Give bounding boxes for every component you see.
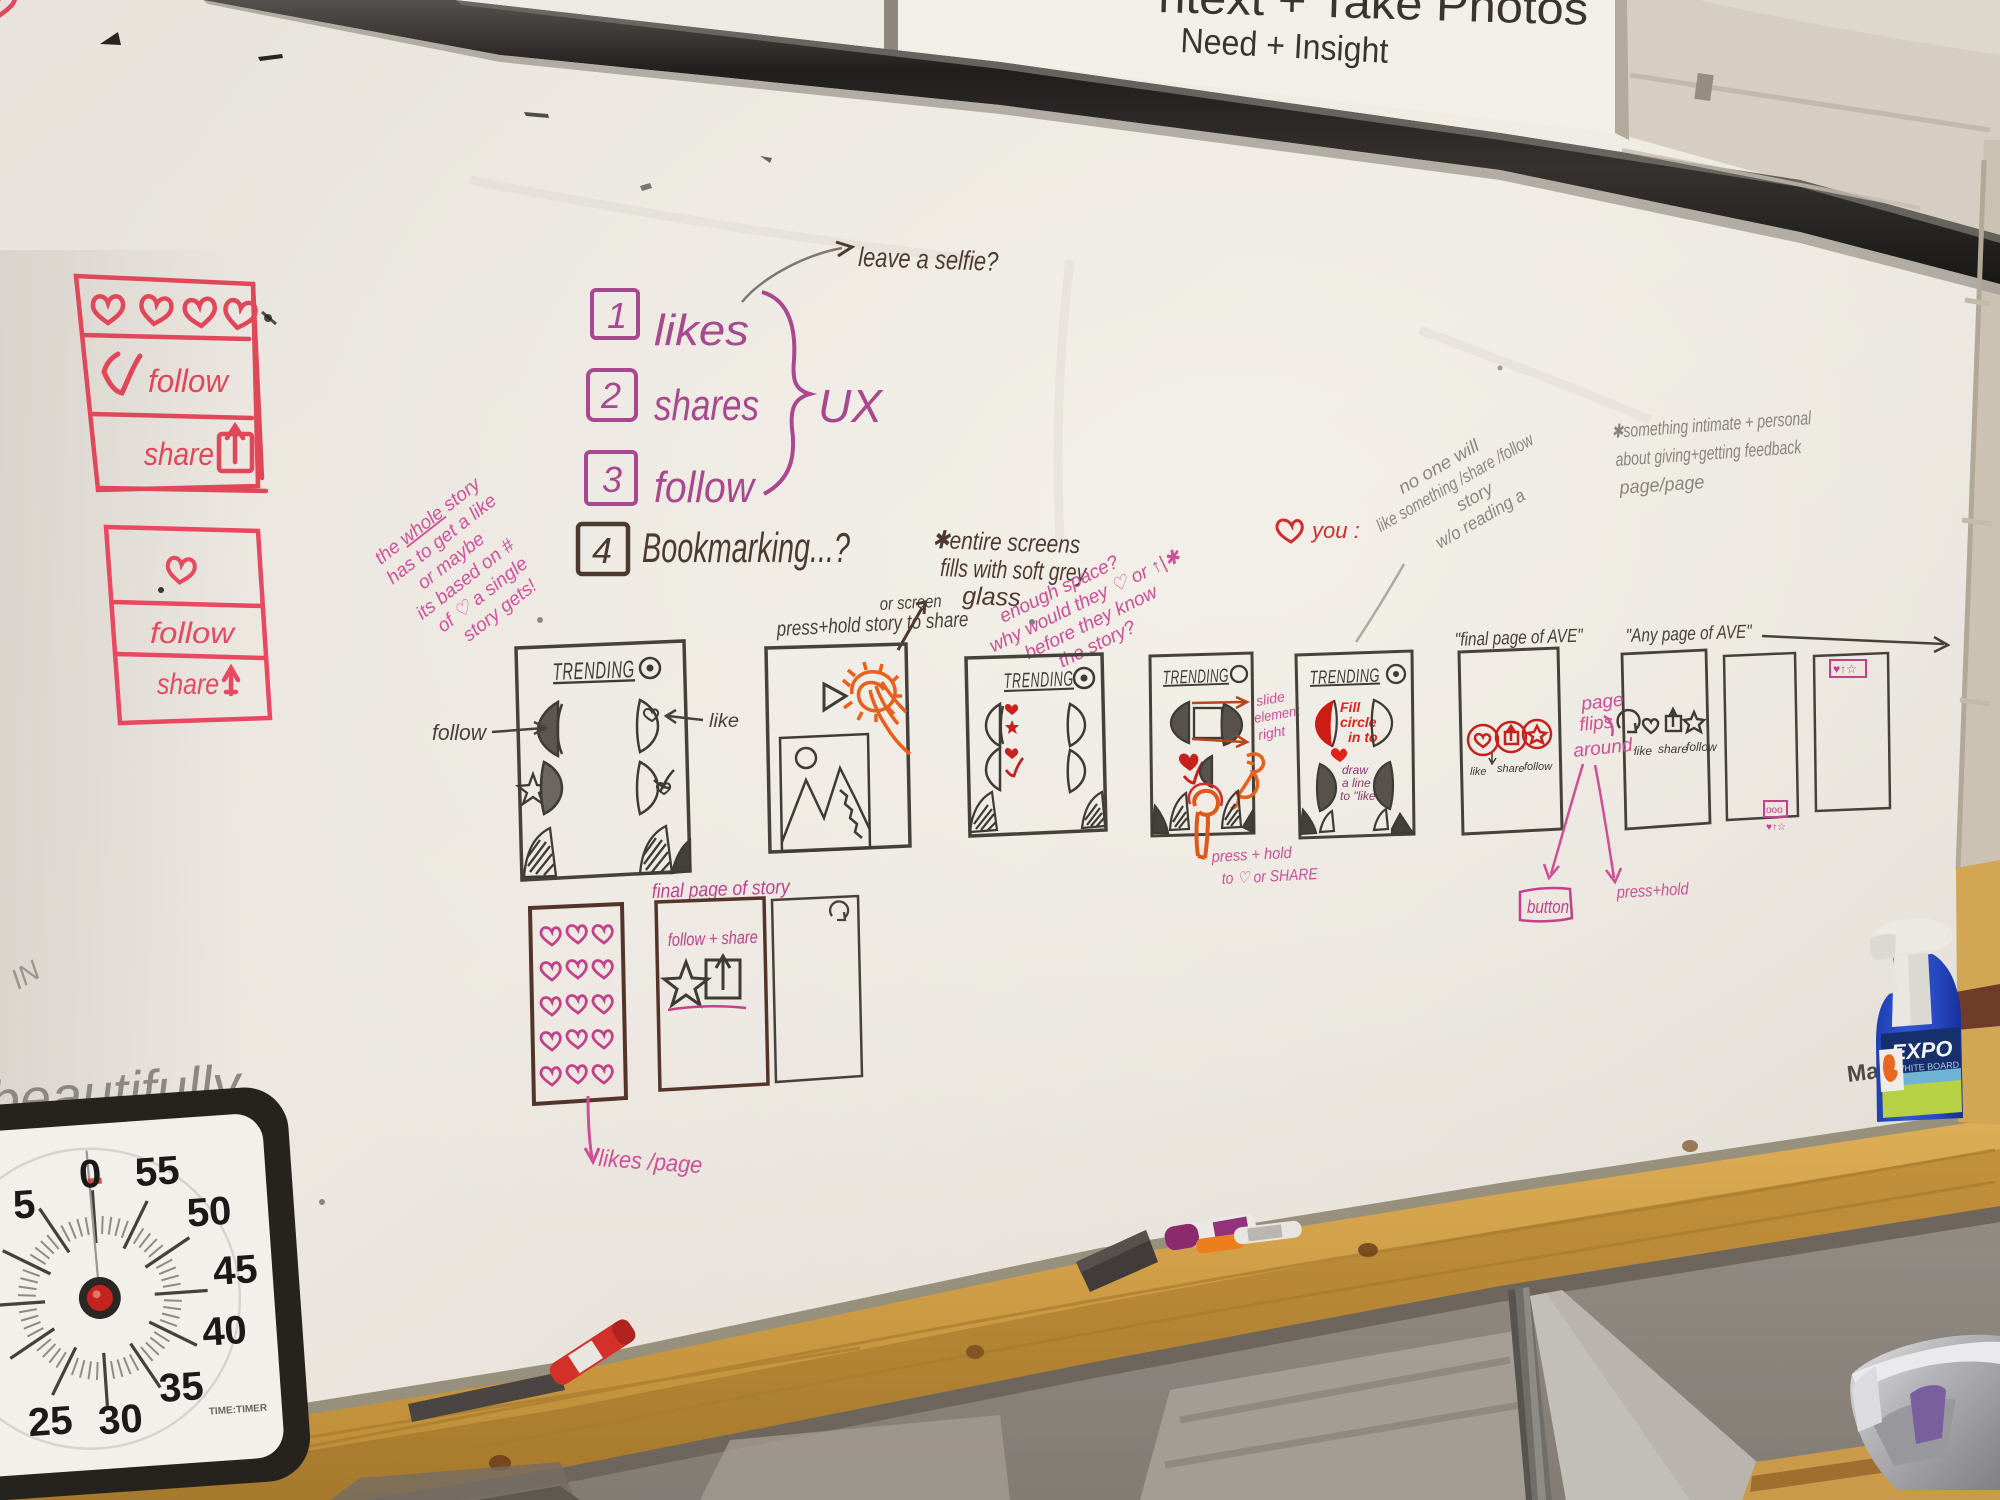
svg-text:follow: follow <box>1686 740 1718 754</box>
svg-text:TRENDING: TRENDING <box>1162 666 1229 689</box>
svg-text:share: share <box>144 436 214 472</box>
svg-text:like: like <box>1470 766 1487 778</box>
svg-text:draw: draw <box>1342 763 1369 777</box>
svg-text:45: 45 <box>212 1247 259 1294</box>
svg-text:share: share <box>1658 742 1688 756</box>
svg-text:50: 50 <box>185 1189 232 1236</box>
svg-text:button: button <box>1527 897 1569 917</box>
svg-text:a line: a line <box>1342 776 1371 790</box>
svg-text:follow: follow <box>432 720 488 745</box>
svg-text:press+hold: press+hold <box>1615 879 1689 902</box>
svg-text:share: share <box>1497 763 1525 775</box>
svg-text:40: 40 <box>201 1308 248 1355</box>
svg-text:TRENDING: TRENDING <box>552 656 635 686</box>
svg-text:UX: UX <box>818 380 884 432</box>
svg-text:55: 55 <box>133 1148 180 1195</box>
svg-text:1: 1 <box>607 295 627 336</box>
svg-text:flips: flips <box>1578 712 1614 736</box>
svg-text:leave a selfie?: leave a selfie? <box>858 242 999 277</box>
svg-text:like: like <box>709 711 739 732</box>
svg-text:ooo: ooo <box>1766 805 1783 816</box>
svg-text:35: 35 <box>158 1364 205 1411</box>
svg-text:2: 2 <box>600 375 621 416</box>
svg-text:4: 4 <box>592 530 612 571</box>
svg-text:TRENDING: TRENDING <box>1309 666 1380 689</box>
svg-text:25: 25 <box>27 1398 74 1445</box>
svg-text:Bookmarking...?: Bookmarking...? <box>642 524 850 571</box>
svg-text:to "like": to "like" <box>1340 789 1381 803</box>
svg-text:follow: follow <box>1524 761 1553 773</box>
svg-text:30: 30 <box>97 1396 144 1443</box>
svg-text:"Any page of AVE": "Any page of AVE" <box>1625 622 1753 647</box>
svg-text:5: 5 <box>12 1182 37 1227</box>
svg-text:TRENDING: TRENDING <box>1003 668 1074 693</box>
svg-text:Fill: Fill <box>1340 699 1361 715</box>
svg-text:likes: likes <box>654 306 749 355</box>
svg-text:you :: you : <box>1310 518 1360 543</box>
svg-text:follow: follow <box>150 617 237 650</box>
svg-text:"final page of AVE": "final page of AVE" <box>1454 626 1584 651</box>
svg-text:page: page <box>1579 690 1624 715</box>
svg-text:share: share <box>157 668 219 701</box>
svg-text:follow: follow <box>654 463 757 512</box>
svg-text:shares: shares <box>654 381 759 430</box>
svg-text:follow + share: follow + share <box>667 927 758 950</box>
svg-text:3: 3 <box>602 459 622 500</box>
svg-text:0: 0 <box>78 1152 103 1197</box>
svg-text:♥↑☆: ♥↑☆ <box>1833 662 1857 676</box>
svg-text:follow: follow <box>148 363 230 399</box>
svg-text:♥↑☆: ♥↑☆ <box>1766 822 1786 833</box>
